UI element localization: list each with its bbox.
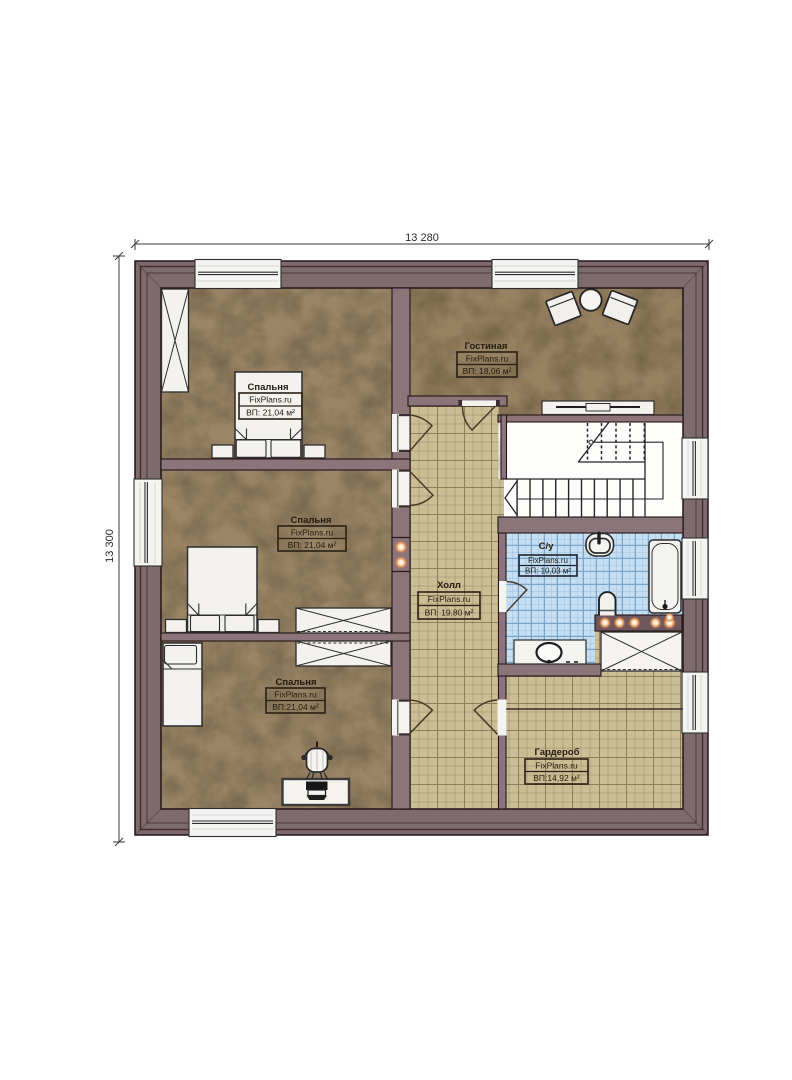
svg-text:Гардероб: Гардероб — [535, 747, 580, 758]
svg-text:ВП: 10,03 м²: ВП: 10,03 м² — [525, 567, 571, 576]
svg-text:ВП: 19,80 м²: ВП: 19,80 м² — [425, 608, 474, 618]
svg-text:FixPlans.ru: FixPlans.ru — [428, 594, 471, 604]
svg-text:Гостиная: Гостиная — [465, 341, 508, 352]
svg-text:ВП:21,04 м²: ВП:21,04 м² — [272, 702, 319, 712]
svg-text:FixPlans.ru: FixPlans.ru — [291, 528, 334, 538]
svg-text:FixPlans.ru: FixPlans.ru — [535, 761, 578, 771]
svg-text:13 300: 13 300 — [104, 529, 116, 563]
svg-text:Спальня: Спальня — [290, 515, 331, 526]
svg-text:ВП:14,92 м²: ВП:14,92 м² — [533, 773, 580, 783]
svg-text:С/у: С/у — [539, 541, 555, 552]
svg-text:FixPlans.ru: FixPlans.ru — [274, 690, 317, 700]
svg-text:ВП: 21,04 м²: ВП: 21,04 м² — [246, 408, 295, 418]
svg-text:FixPlans.ru: FixPlans.ru — [249, 395, 292, 405]
svg-text:Спальня: Спальня — [247, 382, 288, 393]
svg-text:Холл: Холл — [437, 580, 461, 591]
svg-text:13 280: 13 280 — [405, 232, 439, 244]
svg-text:FixPlans.ru: FixPlans.ru — [528, 556, 568, 565]
svg-text:ВП: 18,06 м²: ВП: 18,06 м² — [463, 366, 512, 376]
svg-text:Спальня: Спальня — [275, 677, 316, 688]
svg-text:ВП: 21,04 м²: ВП: 21,04 м² — [288, 540, 337, 550]
svg-text:FixPlans.ru: FixPlans.ru — [466, 354, 509, 364]
